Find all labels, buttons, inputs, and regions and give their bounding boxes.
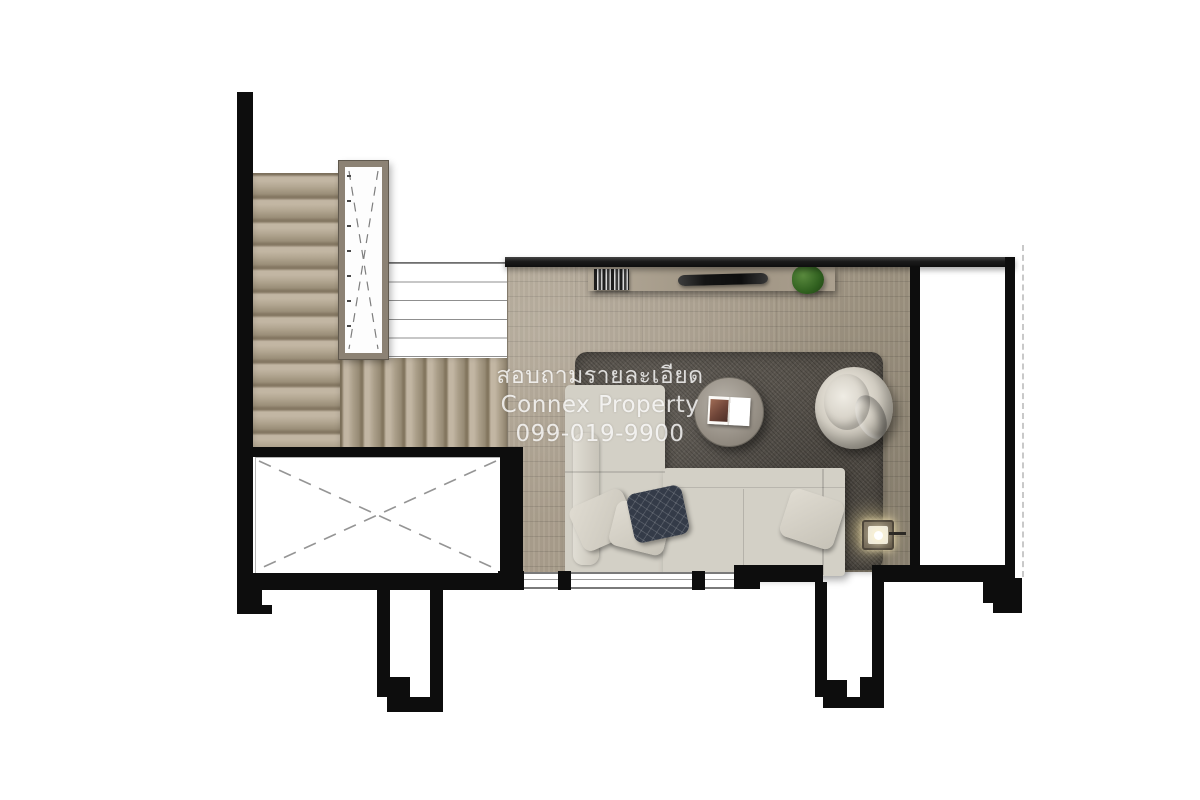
stair-railing [388, 262, 507, 358]
void-right-wall [500, 447, 523, 573]
watermark-line-2: Connex Property [460, 391, 740, 420]
recess-left-step [377, 677, 410, 697]
window-mullion-1 [558, 571, 571, 590]
bottom-wall-right [872, 565, 1012, 582]
side-room-left-wall [910, 266, 920, 578]
top-wall [505, 257, 1015, 267]
watermark-line-1: สอบถามรายละเอียด [460, 362, 740, 391]
sofa-seam-chaise [565, 471, 665, 473]
floor-lamp-arm [889, 532, 906, 535]
side-room-right-wall [1005, 257, 1015, 578]
window-1 [524, 572, 558, 589]
tv-soundbar [678, 273, 768, 286]
floor-lamp-bulb [874, 531, 883, 540]
sofa-seat-seam [743, 489, 744, 575]
property-dashed-line [1022, 245, 1024, 577]
books [594, 269, 629, 290]
left-wall [237, 92, 253, 605]
recess-left-pier-a [377, 588, 390, 683]
lounge-armchair [815, 367, 893, 449]
open-void-x-mark [256, 458, 499, 572]
left-wall-foot-step [237, 605, 272, 614]
stair-nosing-ticks [347, 175, 351, 345]
recess-left-bar [387, 697, 443, 712]
floor-lamp [862, 520, 894, 550]
recess-right-pier-b [872, 582, 884, 708]
window-mullion-2 [692, 571, 705, 590]
window-corner-block [498, 571, 524, 590]
plant [792, 265, 824, 294]
recess-right-step [815, 680, 847, 697]
window-3 [705, 572, 734, 589]
recess-left-pier-b [430, 588, 443, 697]
side-room-foot-step [993, 603, 1022, 613]
watermark-line-3: 099-019-9900 [460, 420, 740, 449]
watermark: สอบถามรายละเอียด Connex Property 099-019… [460, 362, 740, 449]
stair-shaft-x-mark [347, 169, 380, 351]
bottom-wall-left-step [734, 582, 760, 589]
bottom-wall-left [734, 565, 823, 582]
floor-plan-canvas: สอบถามรายละเอียด Connex Property 099-019… [0, 0, 1200, 800]
recess-right-pier-a [815, 582, 827, 685]
window-2 [571, 572, 692, 589]
stair-upper-flight [253, 173, 340, 455]
recess-right-notch [860, 677, 872, 697]
sofa-back-seam [663, 487, 845, 488]
